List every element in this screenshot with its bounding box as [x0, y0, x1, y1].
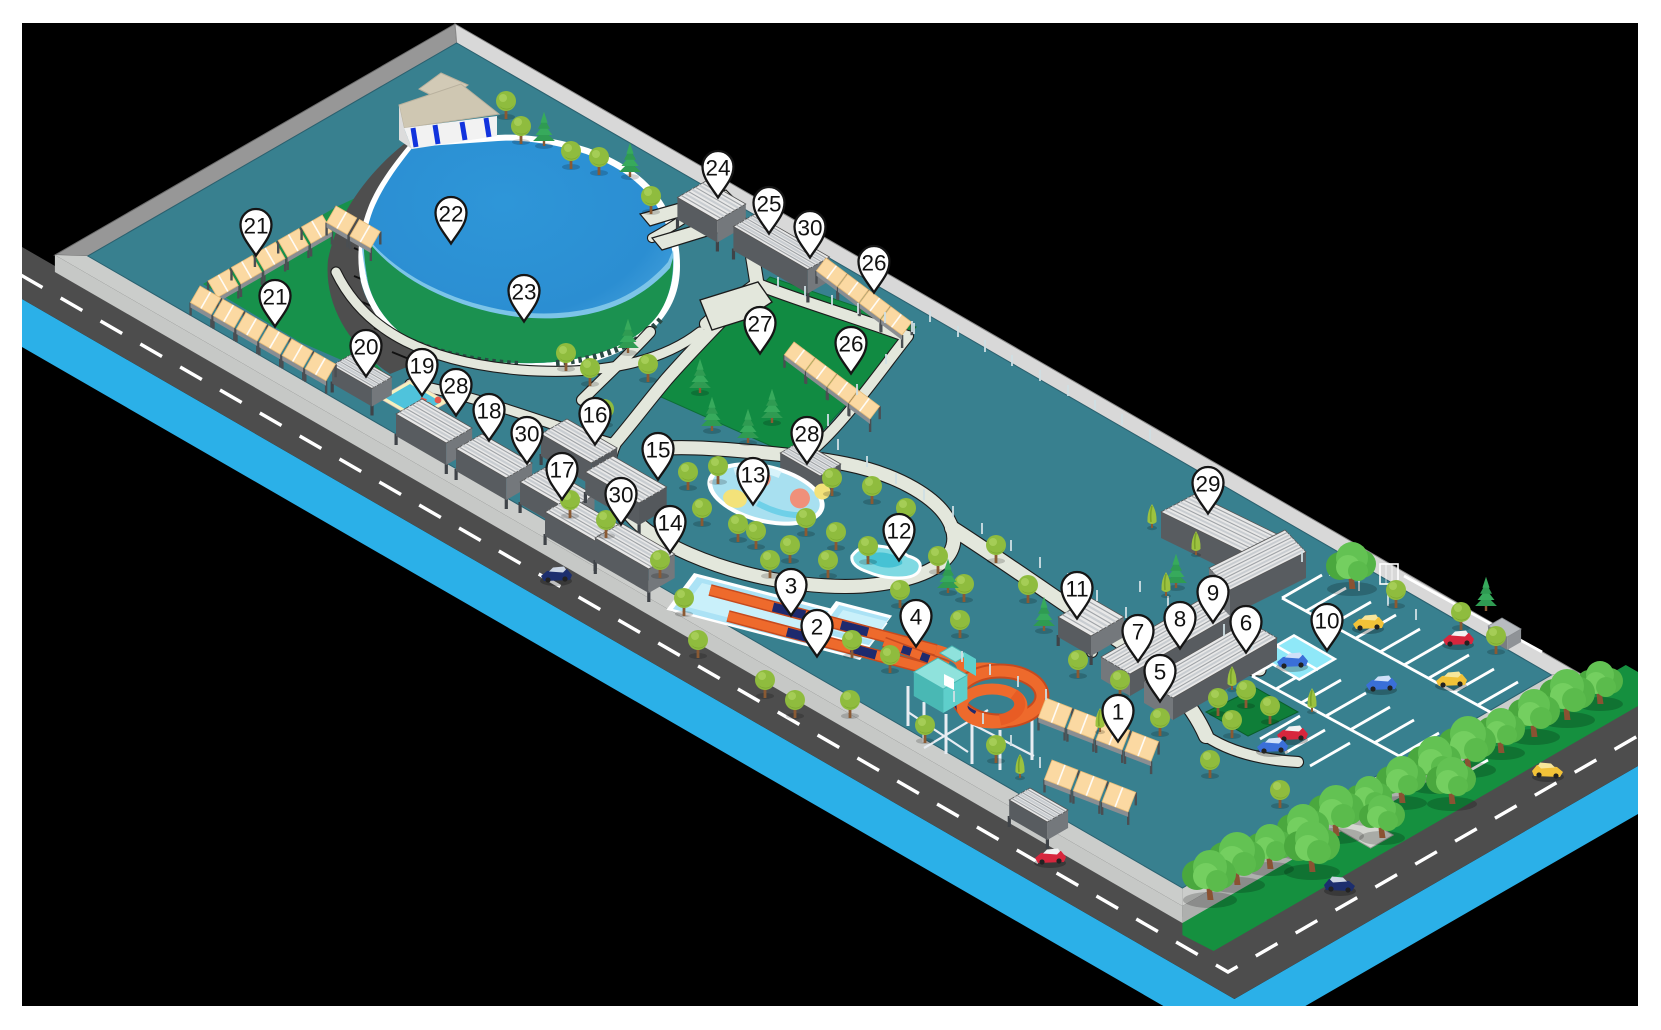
svg-text:7: 7: [1132, 620, 1145, 645]
svg-text:30: 30: [797, 216, 822, 241]
svg-text:13: 13: [740, 463, 765, 488]
svg-text:29: 29: [1195, 472, 1220, 497]
svg-text:6: 6: [1240, 611, 1253, 636]
svg-text:30: 30: [514, 422, 539, 447]
svg-text:10: 10: [1314, 609, 1339, 634]
svg-text:19: 19: [409, 354, 434, 379]
svg-text:9: 9: [1207, 581, 1220, 606]
svg-text:4: 4: [910, 605, 923, 630]
svg-text:12: 12: [886, 519, 911, 544]
svg-text:28: 28: [794, 422, 819, 447]
svg-text:16: 16: [582, 403, 607, 428]
svg-text:8: 8: [1174, 607, 1187, 632]
svg-text:26: 26: [838, 332, 863, 357]
svg-text:17: 17: [549, 458, 574, 483]
svg-text:14: 14: [657, 511, 682, 536]
svg-text:15: 15: [645, 438, 670, 463]
svg-text:11: 11: [1065, 577, 1088, 602]
svg-text:18: 18: [476, 399, 501, 424]
svg-text:28: 28: [443, 374, 468, 399]
svg-text:30: 30: [608, 483, 633, 508]
svg-text:21: 21: [243, 214, 268, 239]
svg-text:21: 21: [262, 285, 287, 310]
svg-text:1: 1: [1112, 700, 1125, 725]
svg-text:25: 25: [756, 192, 781, 217]
svg-text:24: 24: [705, 156, 730, 181]
svg-text:5: 5: [1154, 660, 1167, 685]
svg-text:23: 23: [511, 280, 536, 305]
svg-text:22: 22: [438, 202, 463, 227]
svg-text:20: 20: [353, 335, 378, 360]
svg-text:3: 3: [785, 574, 798, 599]
svg-text:27: 27: [747, 312, 772, 337]
svg-text:26: 26: [861, 251, 886, 276]
svg-text:2: 2: [811, 615, 824, 640]
